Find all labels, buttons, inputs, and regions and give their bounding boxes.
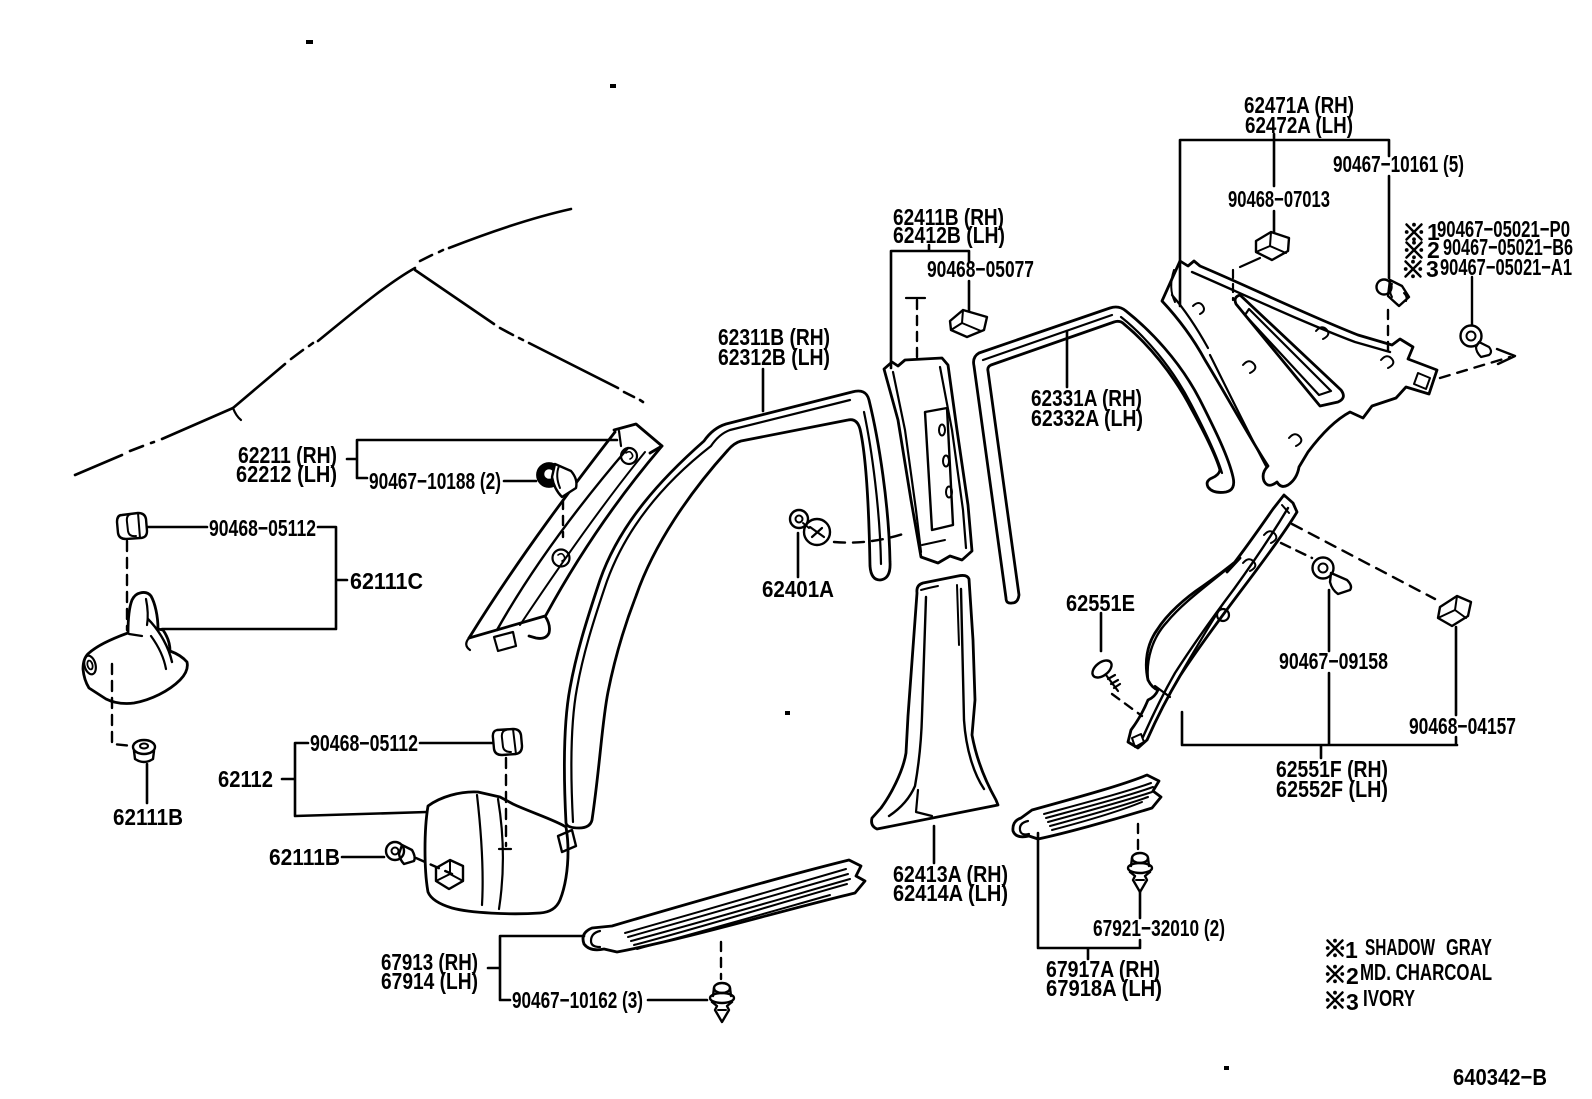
svg-text:62332A (LH): 62332A (LH) [1031,405,1143,431]
svg-text:90467−10162 (3): 90467−10162 (3) [512,987,643,1013]
svg-text:3: 3 [1346,989,1359,1015]
svg-text:62412B (LH): 62412B (LH) [893,222,1005,248]
svg-text:62552F (LH): 62552F (LH) [1276,776,1388,802]
svg-text:90468−07013: 90468−07013 [1228,186,1330,212]
svg-text:62312B (LH): 62312B (LH) [718,344,830,370]
svg-text:62401A: 62401A [762,576,834,602]
svg-text:90467−09158: 90467−09158 [1279,648,1388,674]
svg-text:90467−10161 (5): 90467−10161 (5) [1333,151,1464,177]
svg-text:90468−04157: 90468−04157 [1409,713,1516,739]
svg-text:62111C: 62111C [350,568,423,594]
svg-text:62111B: 62111B [113,804,183,830]
svg-text:62212 (LH): 62212 (LH) [236,461,337,487]
svg-text:90468−05112: 90468−05112 [310,730,418,756]
svg-text:3: 3 [1426,256,1439,282]
svg-text:67918A (LH): 67918A (LH) [1046,975,1162,1001]
svg-text:SHADOW: SHADOW [1365,934,1435,960]
svg-text:62414A (LH): 62414A (LH) [893,880,1008,906]
svg-text:62112: 62112 [218,766,273,792]
svg-text:90468−05077: 90468−05077 [927,256,1034,282]
svg-text:1: 1 [1345,937,1358,963]
svg-text:67914 (LH): 67914 (LH) [381,968,478,994]
svg-text:640342−B: 640342−B [1453,1064,1547,1090]
svg-text:90467−05021−A1: 90467−05021−A1 [1440,254,1572,280]
svg-text:90467−10188 (2): 90467−10188 (2) [369,468,501,494]
svg-text:67921−32010 (2): 67921−32010 (2) [1093,915,1225,941]
svg-text:62551E: 62551E [1066,590,1135,616]
svg-text:2: 2 [1346,963,1359,989]
svg-text:IVORY: IVORY [1363,985,1415,1011]
svg-text:62111B: 62111B [269,844,340,870]
svg-text:MD. CHARCOAL: MD. CHARCOAL [1360,959,1492,985]
svg-text:62472A (LH): 62472A (LH) [1245,112,1353,138]
svg-text:GRAY: GRAY [1446,934,1492,960]
svg-text:90468−05112: 90468−05112 [209,515,316,541]
